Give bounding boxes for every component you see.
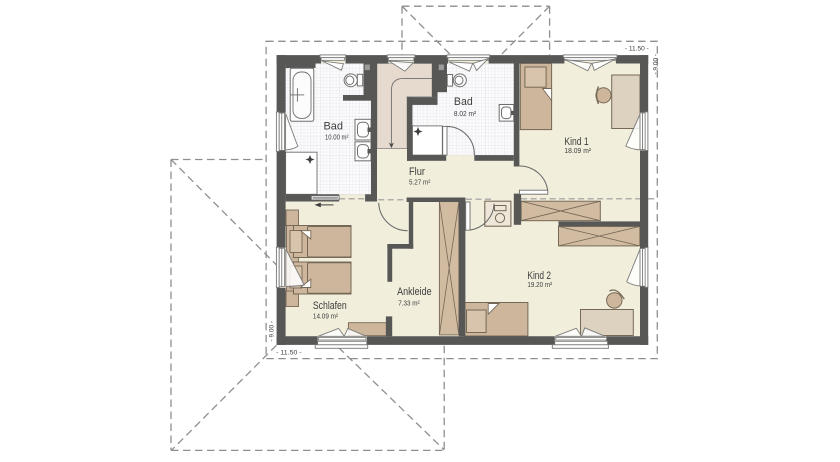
svg-text:19.20 m²: 19.20 m² — [527, 280, 552, 289]
svg-text:Bad: Bad — [324, 120, 344, 132]
svg-text:7.33 m²: 7.33 m² — [398, 299, 420, 308]
svg-text:Schlafen: Schlafen — [313, 300, 347, 312]
svg-text:Bad: Bad — [454, 96, 473, 108]
svg-text:14.09 m²: 14.09 m² — [313, 311, 339, 320]
svg-text:18.09 m²: 18.09 m² — [564, 146, 591, 155]
svg-text:10.00 m²: 10.00 m² — [325, 133, 349, 142]
svg-text:- 11.50 -: - 11.50 - — [276, 349, 301, 356]
svg-text:Flur: Flur — [409, 166, 425, 178]
svg-text:- 11.50 -: - 11.50 - — [625, 46, 649, 53]
svg-text:- 9.00 -: - 9.00 - — [652, 54, 659, 75]
svg-text:8.02 m²: 8.02 m² — [454, 109, 477, 118]
svg-text:Ankleide: Ankleide — [397, 286, 432, 298]
svg-text:- 9.00 -: - 9.00 - — [268, 321, 275, 342]
svg-text:5.27 m²: 5.27 m² — [409, 178, 431, 187]
